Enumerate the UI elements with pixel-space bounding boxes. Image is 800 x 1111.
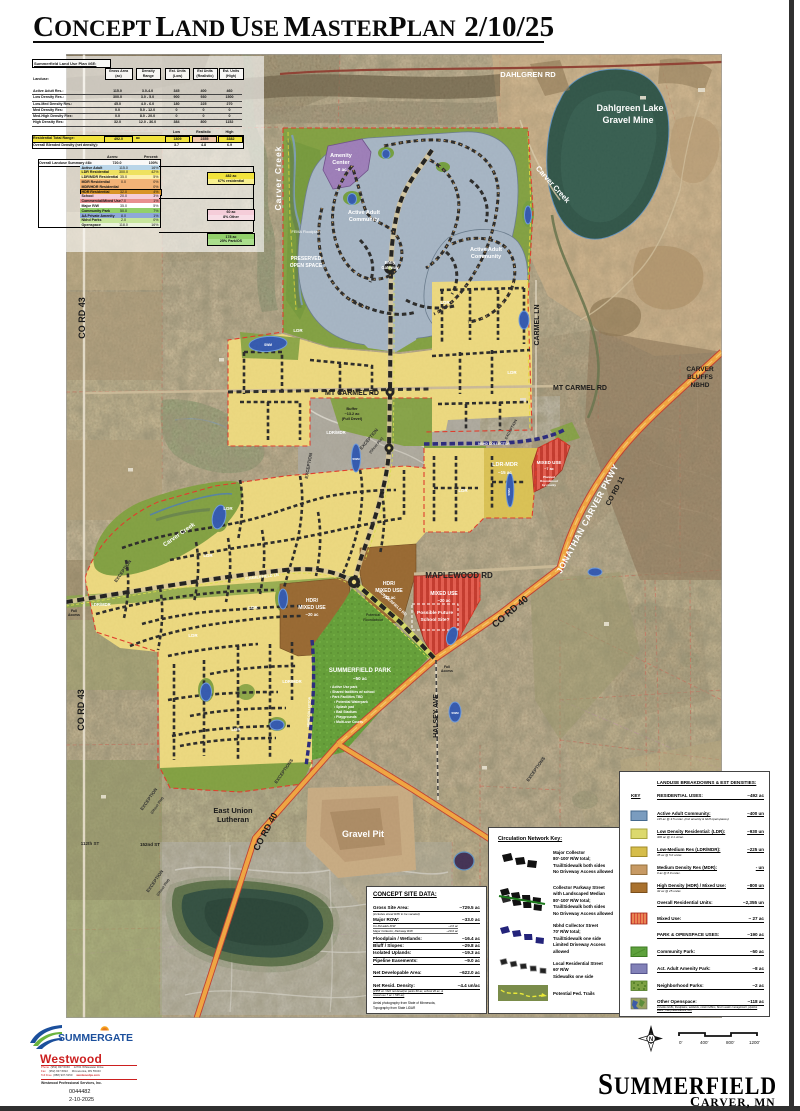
svg-text:Lutheran: Lutheran <box>217 815 250 824</box>
svg-text:MIXED USE: MIXED USE <box>430 591 458 597</box>
svg-text:FEMA Floodplain: FEMA Floodplain <box>292 230 321 234</box>
svg-text:MT CARMEL RD: MT CARMEL RD <box>325 390 379 397</box>
svg-text:LDR: LDR <box>458 488 468 493</box>
svg-text:1200’: 1200’ <box>749 1040 760 1045</box>
svg-text:Active Adult: Active Adult <box>470 247 502 253</box>
svg-text:Community: Community <box>349 217 380 223</box>
svg-text:Community: Community <box>471 254 502 260</box>
svg-text:School Site?: School Site? <box>420 617 449 623</box>
svg-text:LDR/MDR: LDR/MDR <box>282 679 301 684</box>
svg-text:152nd ST: 152nd ST <box>140 842 160 847</box>
svg-text:Potential: Potential <box>366 613 380 617</box>
svg-text:• Active Use park: • Active Use park <box>330 685 358 689</box>
svg-text:Amenity: Amenity <box>330 153 353 159</box>
svg-text:Dahlgreen Lake: Dahlgreen Lake <box>596 103 663 113</box>
svg-text:LDR: LDR <box>188 633 198 638</box>
svg-text:East Union: East Union <box>213 806 253 815</box>
svg-text:• Park Facilities TBD: • Park Facilities TBD <box>330 695 363 699</box>
svg-text:• Ball Stadium: • Ball Stadium <box>334 710 357 714</box>
svg-text:Gravel Mine: Gravel Mine <box>602 115 653 125</box>
svg-text:0’: 0’ <box>679 1040 683 1045</box>
svg-text:Roundabout: Roundabout <box>363 618 383 622</box>
svg-text:MIXED USE: MIXED USE <box>537 460 562 465</box>
svg-text:LDR: LDR <box>203 553 213 558</box>
svg-text:400’: 400’ <box>700 1040 709 1045</box>
svg-text:• Shared facilities w/ school: • Shared facilities w/ school <box>330 690 375 694</box>
svg-text:LDR/MDR: LDR/MDR <box>91 602 110 607</box>
svg-text:Carver Creek: Carver Creek <box>273 146 283 211</box>
svg-text:N: N <box>649 1037 653 1043</box>
svg-text:SWM: SWM <box>264 343 272 347</box>
svg-text:CO RD 43: CO RD 43 <box>76 689 86 731</box>
svg-text:MAPLEWOOD RD: MAPLEWOOD RD <box>425 571 493 580</box>
svg-text:SUMMERGATE: SUMMERGATE <box>58 1032 133 1044</box>
svg-text:112th ST: 112th ST <box>81 841 100 846</box>
svg-text:SUMMERFIELD PARK: SUMMERFIELD PARK <box>329 668 392 674</box>
svg-text:DAHLGREN RD: DAHLGREN RD <box>500 70 556 79</box>
svg-text:LDR/MDR: LDR/MDR <box>326 430 345 435</box>
svg-text:Possible Future: Possible Future <box>417 610 453 616</box>
svg-text:• Multi-use Courts: • Multi-use Courts <box>334 720 363 724</box>
svg-text:NBHD: NBHD <box>691 382 710 389</box>
svg-text:MT CARMEL RD: MT CARMEL RD <box>553 385 607 392</box>
svg-text:LDR-MDR: LDR-MDR <box>492 462 518 468</box>
svg-text:OPEN SPACE: OPEN SPACE <box>290 263 323 269</box>
svg-text:• Potential Waterpark: • Potential Waterpark <box>334 700 368 704</box>
svg-text:800’: 800’ <box>726 1040 735 1045</box>
svg-text:LDR: LDR <box>507 370 517 375</box>
svg-text:by county: by county <box>542 483 556 487</box>
svg-text:• Playgrounds: • Playgrounds <box>334 715 357 719</box>
svg-text:CO RD 43: CO RD 43 <box>77 297 87 339</box>
svg-text:CARMEL LN: CARMEL LN <box>534 304 541 345</box>
svg-text:HDR/: HDR/ <box>306 598 319 604</box>
svg-text:~20 ac: ~20 ac <box>438 598 452 603</box>
svg-text:BLUFFS: BLUFFS <box>687 374 713 381</box>
svg-text:CARVER: CARVER <box>686 366 714 373</box>
svg-text:Access: Access <box>68 613 80 617</box>
svg-text:(Full Devel): (Full Devel) <box>342 417 363 421</box>
svg-text:LDR: LDR <box>223 506 233 511</box>
svg-text:SWM: SWM <box>451 711 459 715</box>
svg-text:HALSEY AVE: HALSEY AVE <box>433 694 440 738</box>
svg-text:~15 ac: ~15 ac <box>498 470 512 475</box>
svg-text:Buffer: Buffer <box>346 407 358 411</box>
svg-text:Gateway: Gateway <box>381 265 399 270</box>
svg-text:LDR: LDR <box>440 300 450 305</box>
svg-text:NBHD COLLECTOR: NBHD COLLECTOR <box>478 442 510 446</box>
svg-text:PRESERVED: PRESERVED <box>291 256 322 262</box>
svg-text:~8 ac: ~8 ac <box>335 167 347 172</box>
svg-text:SWM: SWM <box>507 488 511 496</box>
svg-text:~20 ac: ~20 ac <box>306 612 320 617</box>
svg-text:Center: Center <box>332 160 350 166</box>
svg-text:Access: Access <box>441 669 453 673</box>
svg-text:• Splash pad: • Splash pad <box>334 705 354 709</box>
svg-text:Gravel Pit: Gravel Pit <box>342 829 384 839</box>
svg-text:LDR: LDR <box>248 605 258 610</box>
svg-text:HDR/: HDR/ <box>383 581 396 587</box>
svg-text:LDR: LDR <box>293 328 303 333</box>
svg-text:~13.2 ac: ~13.2 ac <box>345 412 360 416</box>
svg-text:MIXED USE: MIXED USE <box>298 605 326 611</box>
svg-text:~7 ac: ~7 ac <box>544 467 554 471</box>
svg-text:LDR: LDR <box>231 727 241 732</box>
svg-text:SWM: SWM <box>352 457 360 461</box>
svg-text:Active Adult: Active Adult <box>348 210 380 216</box>
svg-text:~50 ac: ~50 ac <box>353 676 367 681</box>
